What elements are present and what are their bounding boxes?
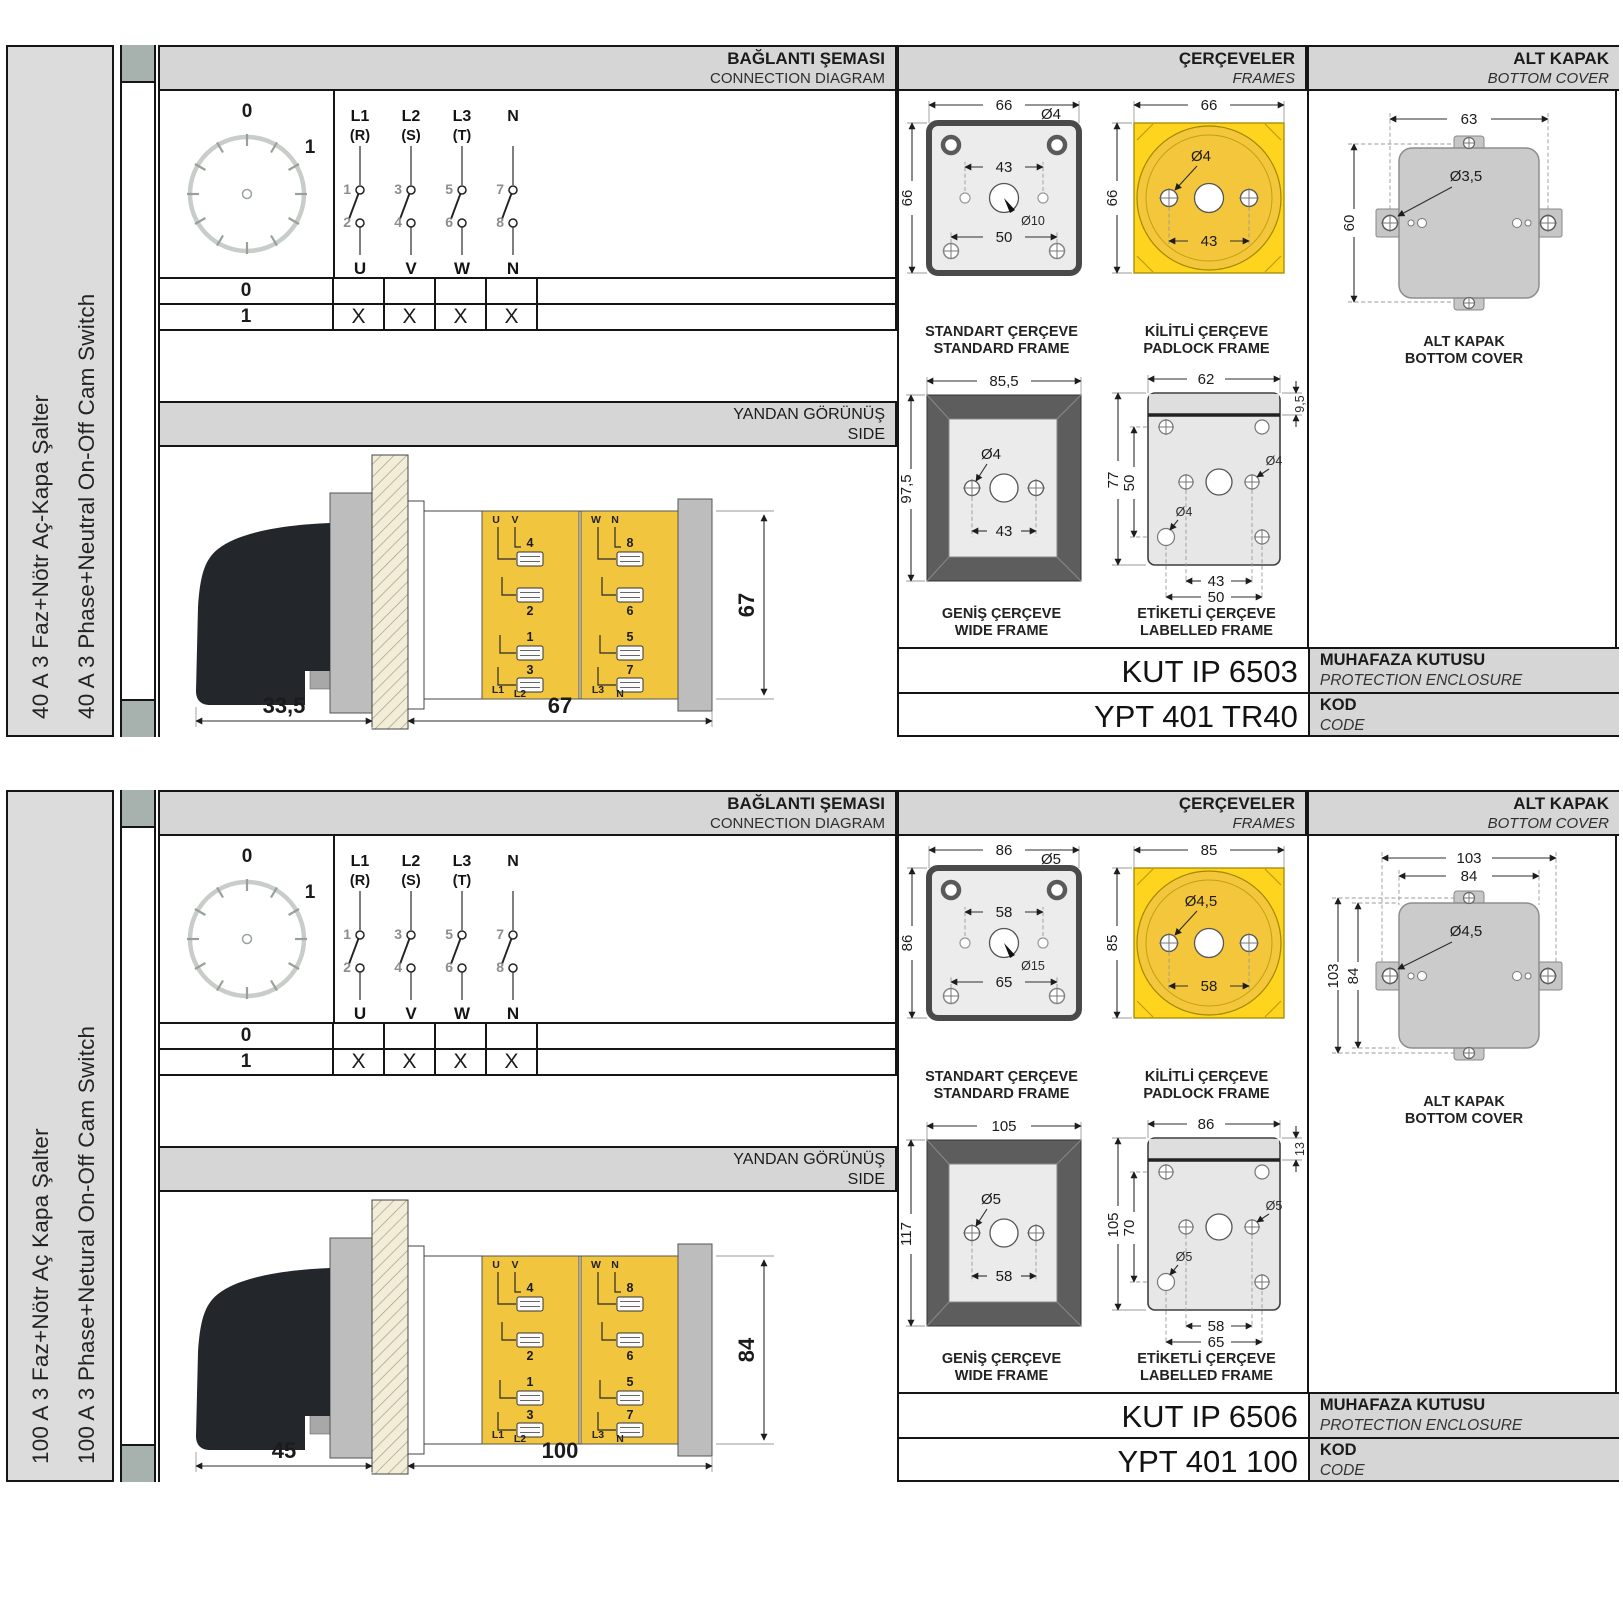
spine-square-bottom xyxy=(122,1444,154,1482)
row1-cell: X xyxy=(487,1050,538,1074)
connection-diagram-drawing: 0 1 L1 (R) 1 2 U L2 (S) xyxy=(160,91,897,279)
svg-text:8: 8 xyxy=(627,536,634,550)
dim-center-dia: Ø10 xyxy=(1021,214,1045,228)
side-header-tr: YANDAN GÖRÜNÜŞ xyxy=(160,405,885,425)
dim-body-height: 67 xyxy=(734,593,759,617)
header-connection-diagram: BAĞLANTI ŞEMASI CONNECTION DIAGRAM xyxy=(160,45,897,91)
svg-text:U: U xyxy=(492,1259,500,1271)
svg-text:N: N xyxy=(507,259,519,278)
header-frames-tr: ÇERÇEVELER xyxy=(899,794,1295,815)
svg-text:V: V xyxy=(511,514,518,526)
figure-labelled-frame: 86 13 105 70 xyxy=(1104,1114,1309,1392)
svg-text:3: 3 xyxy=(394,181,402,197)
svg-text:N: N xyxy=(507,853,519,870)
svg-text:6: 6 xyxy=(445,214,453,230)
binder-spine xyxy=(120,790,156,1482)
svg-text:(T): (T) xyxy=(453,128,472,144)
svg-text:6: 6 xyxy=(627,1349,634,1363)
enclosure-label: MUHAFAZA KUTUSU PROTECTION ENCLOSURE xyxy=(1308,649,1619,692)
header-connection-en: CONNECTION DIAGRAM xyxy=(160,70,885,88)
enclosure-code: KUT IP 6506 xyxy=(899,1394,1308,1437)
bottom-cover-column: 103 84 103 84 xyxy=(1307,836,1619,1392)
svg-text:L2: L2 xyxy=(514,1433,526,1445)
wide-frame-drawing: 105 117 Ø5 xyxy=(899,1114,1104,1350)
dim-cover-hole: Ø3,5 xyxy=(1450,168,1483,185)
labelled-frame-caption: ETİKETLİ ÇERÇEVE LABELLED FRAME xyxy=(1104,1351,1309,1386)
row0-cell xyxy=(487,1024,538,1048)
figure-standard-frame: 66 Ø4 66 xyxy=(899,91,1104,369)
svg-text:(T): (T) xyxy=(453,873,472,889)
row0-cell xyxy=(436,279,487,303)
standard-frame-caption: STANDART ÇERÇEVE STANDARD FRAME xyxy=(899,1069,1104,1104)
svg-text:5: 5 xyxy=(445,926,453,942)
wide-frame-caption: GENİŞ ÇERÇEVE WIDE FRAME xyxy=(899,606,1104,641)
svg-text:7: 7 xyxy=(496,926,504,942)
table-row-0: 0 xyxy=(160,1024,897,1050)
dim-frame-width: 66 xyxy=(996,97,1013,114)
svg-text:(R): (R) xyxy=(350,128,370,144)
svg-text:8: 8 xyxy=(496,214,504,230)
labelled-frame-drawing: 86 13 105 70 xyxy=(1104,1114,1309,1350)
dim-handle-depth: 45 xyxy=(272,1438,296,1463)
dim-frame-height: 77 xyxy=(1105,472,1122,489)
rotary-dial: 0 1 xyxy=(187,101,316,254)
dim-body-height: 84 xyxy=(734,1337,759,1362)
header-cover-en: BOTTOM COVER xyxy=(1309,815,1609,833)
svg-text:4: 4 xyxy=(527,1281,534,1295)
svg-text:5: 5 xyxy=(445,181,453,197)
svg-text:N: N xyxy=(611,1259,619,1271)
pole-l1: L1 (R) 1 2 U xyxy=(343,853,370,1023)
dim-frame-width: 85 xyxy=(1201,842,1218,859)
dim-span: 58 xyxy=(1201,978,1218,995)
side-view-drawing: U V 4 2 1 xyxy=(160,1192,897,1482)
svg-text:L3: L3 xyxy=(592,1429,604,1441)
dim-frame-height: 97,5 xyxy=(899,474,915,503)
header-bottom-cover: ALT KAPAK BOTTOM COVER xyxy=(1307,790,1619,836)
dim-body-width: 67 xyxy=(548,693,572,718)
svg-text:3: 3 xyxy=(527,663,534,677)
svg-text:V: V xyxy=(405,259,417,278)
side-view-box: U V 4 2 1 xyxy=(160,1192,897,1482)
panel-content: BAĞLANTI ŞEMASI CONNECTION DIAGRAM ÇERÇE… xyxy=(158,45,1617,737)
svg-text:2: 2 xyxy=(343,214,351,230)
dim-frame-width: 66 xyxy=(1201,97,1218,114)
dim-frame-width: 86 xyxy=(996,842,1013,859)
dim-frame-width: 86 xyxy=(1198,1116,1215,1133)
figure-padlock-frame: 85 85 xyxy=(1104,836,1309,1114)
side-view-header: YANDAN GÖRÜNÜŞ SIDE xyxy=(160,1146,897,1192)
dim-span2: 50 xyxy=(1208,589,1225,605)
svg-text:7: 7 xyxy=(627,663,634,677)
svg-text:W: W xyxy=(454,259,471,278)
binder-spine xyxy=(120,45,156,737)
svg-text:2: 2 xyxy=(527,604,534,618)
svg-text:N: N xyxy=(616,688,624,700)
dim-span: 58 xyxy=(996,1268,1013,1285)
dim-span2: 65 xyxy=(1208,1334,1225,1350)
product-panel: 100 A 3 Faz+Nötr Aç Kapa Şalter 100 A 3 … xyxy=(6,790,1617,1482)
row1-cell: X xyxy=(385,1050,436,1074)
figure-standard-frame: 86 Ø5 86 xyxy=(899,836,1104,1114)
dim-center-dia: Ø15 xyxy=(1021,959,1045,973)
dim-hole-a: Ø4 xyxy=(1266,454,1283,468)
svg-text:W: W xyxy=(591,1259,601,1271)
dim-handle-depth: 33,5 xyxy=(263,693,306,718)
dim-span-bottom: 50 xyxy=(996,229,1013,246)
product-code: YPT 401 100 xyxy=(899,1439,1308,1480)
dial-position-1: 1 xyxy=(305,137,316,158)
figure-padlock-frame: 66 66 xyxy=(1104,91,1309,369)
code-row: YPT 401 100 KOD CODE xyxy=(897,1437,1619,1482)
padlock-frame-caption: KİLİTLİ ÇERÇEVE PADLOCK FRAME xyxy=(1104,324,1309,359)
dim-span: 43 xyxy=(996,523,1013,540)
pole-l3: L3 (T) 5 6 W xyxy=(445,108,471,278)
row0-filler xyxy=(538,1024,895,1048)
table-row-1: 1 X X X X xyxy=(160,305,897,331)
dim-span1: 43 xyxy=(1208,573,1225,590)
svg-text:1: 1 xyxy=(343,181,351,197)
row1-cell: X xyxy=(334,1050,385,1074)
dim-body-width: 100 xyxy=(542,1438,579,1463)
product-title-english: 40 A 3 Phase+Neutral On-Off Cam Switch xyxy=(74,293,100,719)
bottom-cover-drawing: 63 60 xyxy=(1314,103,1614,333)
dim-hole-a: Ø5 xyxy=(1266,1199,1283,1213)
dim-strip: 9,5 xyxy=(1293,395,1307,412)
svg-text:2: 2 xyxy=(343,959,351,975)
figure-labelled-frame: 62 9,5 77 50 xyxy=(1104,369,1309,647)
dim-cover-height-inner: 84 xyxy=(1345,968,1362,985)
header-connection-diagram: BAĞLANTI ŞEMASI CONNECTION DIAGRAM xyxy=(160,790,897,836)
header-cover-tr: ALT KAPAK xyxy=(1309,794,1609,815)
wide-frame-caption: GENİŞ ÇERÇEVE WIDE FRAME xyxy=(899,1351,1104,1386)
row0-label: 0 xyxy=(160,279,334,303)
svg-text:(S): (S) xyxy=(401,873,421,889)
header-frames-en: FRAMES xyxy=(899,815,1295,833)
product-code: YPT 401 TR40 xyxy=(899,694,1308,735)
dim-strip: 13 xyxy=(1293,1142,1307,1156)
dial-position-0: 0 xyxy=(242,101,253,122)
svg-text:L1: L1 xyxy=(492,684,504,696)
bottom-cover-column: 63 60 xyxy=(1307,91,1619,647)
code-label: KOD CODE xyxy=(1308,694,1619,735)
code-row: YPT 401 TR40 KOD CODE xyxy=(897,692,1619,737)
padlock-frame-drawing: 66 66 xyxy=(1104,91,1309,323)
header-connection-tr: BAĞLANTI ŞEMASI xyxy=(160,794,885,815)
row1-cell: X xyxy=(436,305,487,329)
side-header-tr: YANDAN GÖRÜNÜŞ xyxy=(160,1150,885,1170)
labelled-frame-drawing: 62 9,5 77 50 xyxy=(1104,369,1309,605)
enclosure-label: MUHAFAZA KUTUSU PROTECTION ENCLOSURE xyxy=(1308,1394,1619,1437)
dim-hole-dia: Ø5 xyxy=(981,1191,1001,1208)
svg-text:7: 7 xyxy=(496,181,504,197)
row0-filler xyxy=(538,279,895,303)
row0-cell xyxy=(385,279,436,303)
pole-n: N 7 8 N xyxy=(496,108,519,278)
bottom-cover-caption: ALT KAPAK BOTTOM COVER xyxy=(1309,334,1619,369)
row1-cell: X xyxy=(334,305,385,329)
dial-position-0: 0 xyxy=(242,846,253,867)
side-header-en: SIDE xyxy=(160,425,885,445)
spine-square-top xyxy=(122,790,154,828)
dim-span-bottom: 65 xyxy=(996,974,1013,991)
mounting-plate-hatched xyxy=(372,455,408,729)
row0-cell xyxy=(487,279,538,303)
header-bottom-cover: ALT KAPAK BOTTOM COVER xyxy=(1307,45,1619,91)
svg-text:(S): (S) xyxy=(401,128,421,144)
header-connection-en: CONNECTION DIAGRAM xyxy=(160,815,885,833)
header-frames: ÇERÇEVELER FRAMES xyxy=(897,45,1307,91)
product-sidebar: 40 A 3 Faz+Nötr Aç-Kapa Şalter 40 A 3 Ph… xyxy=(6,45,114,737)
dim-hole-b: Ø5 xyxy=(1176,1250,1193,1264)
connection-diagram-box: 0 1 L1 (R) 1 2 U L2 (S) xyxy=(160,836,897,1024)
svg-text:L1: L1 xyxy=(492,1429,504,1441)
dim-span: 43 xyxy=(1201,233,1218,250)
product-title-turkish: 40 A 3 Faz+Nötr Aç-Kapa Şalter xyxy=(28,395,54,719)
dial-position-1: 1 xyxy=(305,882,316,903)
side-header-en: SIDE xyxy=(160,1170,885,1190)
header-frames-tr: ÇERÇEVELER xyxy=(899,49,1295,70)
frames-column: 86 Ø5 86 xyxy=(897,836,1307,1392)
row0-cell xyxy=(334,279,385,303)
dim-cover-hole: Ø4,5 xyxy=(1450,923,1483,940)
switching-table: 0 1 X X X X xyxy=(160,279,897,331)
svg-text:3: 3 xyxy=(394,926,402,942)
svg-text:5: 5 xyxy=(627,1375,634,1389)
svg-text:2: 2 xyxy=(527,1349,534,1363)
standard-frame-drawing: 86 Ø5 86 xyxy=(899,836,1104,1068)
dim-cover-height-outer: 103 xyxy=(1325,963,1342,988)
dim-cover-width: 63 xyxy=(1461,111,1478,128)
pole-n: N 7 8 N xyxy=(496,853,519,1023)
svg-text:4: 4 xyxy=(394,959,402,975)
standard-frame-drawing: 66 Ø4 66 xyxy=(899,91,1104,323)
svg-text:6: 6 xyxy=(627,604,634,618)
product-title-turkish: 100 A 3 Faz+Nötr Aç Kapa Şalter xyxy=(28,1128,54,1464)
dim-span-vertical: 50 xyxy=(1121,475,1138,492)
dim-cover-width-outer: 103 xyxy=(1456,850,1481,867)
svg-text:6: 6 xyxy=(445,959,453,975)
enclosure-row: KUT IP 6503 MUHAFAZA KUTUSU PROTECTION E… xyxy=(897,647,1619,692)
product-title-english: 100 A 3 Phase+Netural On-Off Cam Switch xyxy=(74,1026,100,1464)
table-row-0: 0 xyxy=(160,279,897,305)
svg-text:7: 7 xyxy=(627,1408,634,1422)
side-view-header: YANDAN GÖRÜNÜŞ SIDE xyxy=(160,401,897,447)
svg-text:N: N xyxy=(611,514,619,526)
dim-frame-height: 117 xyxy=(899,1222,915,1246)
header-frames-en: FRAMES xyxy=(899,70,1295,88)
dim-cover-height: 60 xyxy=(1341,215,1358,232)
pole-l1: L1 (R) 1 2 U xyxy=(343,108,370,278)
svg-text:V: V xyxy=(405,1004,417,1023)
enclosure-code: KUT IP 6503 xyxy=(899,649,1308,692)
pole-l2: L2 (S) 3 4 V xyxy=(394,853,421,1023)
svg-text:L3: L3 xyxy=(453,108,472,125)
product-panel: 40 A 3 Faz+Nötr Aç-Kapa Şalter 40 A 3 Ph… xyxy=(6,45,1617,737)
svg-text:W: W xyxy=(591,514,601,526)
svg-text:3: 3 xyxy=(527,1408,534,1422)
padlock-frame-drawing: 85 85 xyxy=(1104,836,1309,1068)
header-cover-tr: ALT KAPAK xyxy=(1309,49,1609,70)
svg-text:N: N xyxy=(507,1004,519,1023)
svg-text:L3: L3 xyxy=(592,684,604,696)
switching-table: 0 1 X X X X xyxy=(160,1024,897,1076)
row1-filler xyxy=(538,1050,895,1074)
row1-label: 1 xyxy=(160,1050,334,1074)
pole-l3: L3 (T) 5 6 W xyxy=(445,853,471,1023)
svg-text:U: U xyxy=(492,514,500,526)
svg-text:N: N xyxy=(507,108,519,125)
svg-text:U: U xyxy=(354,1004,366,1023)
bottom-cover-drawing: 103 84 103 84 xyxy=(1314,848,1614,1093)
dim-hole-dia: Ø4 xyxy=(981,446,1001,463)
connection-diagram-box: 0 1 L1 (R) 1 2 U L2 (S) xyxy=(160,91,897,279)
svg-text:L3: L3 xyxy=(453,853,472,870)
svg-text:1: 1 xyxy=(527,1375,534,1389)
dim-span-top: 43 xyxy=(996,159,1013,176)
header-frames: ÇERÇEVELER FRAMES xyxy=(897,790,1307,836)
dim-span1: 58 xyxy=(1208,1318,1225,1335)
enclosure-row: KUT IP 6506 MUHAFAZA KUTUSU PROTECTION E… xyxy=(897,1392,1619,1437)
dim-frame-height: 66 xyxy=(899,190,916,207)
dim-frame-height: 86 xyxy=(899,935,916,952)
svg-text:8: 8 xyxy=(627,1281,634,1295)
panel-content: BAĞLANTI ŞEMASI CONNECTION DIAGRAM ÇERÇE… xyxy=(158,790,1617,1482)
dim-span-vertical: 70 xyxy=(1121,1220,1138,1237)
header-connection-tr: BAĞLANTI ŞEMASI xyxy=(160,49,885,70)
dim-hole-dia: Ø4 xyxy=(1191,148,1211,165)
svg-text:1: 1 xyxy=(343,926,351,942)
svg-text:1: 1 xyxy=(527,630,534,644)
svg-text:L2: L2 xyxy=(402,108,421,125)
dim-frame-height: 85 xyxy=(1104,935,1121,952)
row1-cell: X xyxy=(385,305,436,329)
side-view-drawing: U V 4 2 1 xyxy=(160,447,897,737)
bottom-cover-caption: ALT KAPAK BOTTOM COVER xyxy=(1309,1094,1619,1129)
dim-frame-width: 105 xyxy=(991,1118,1016,1135)
dim-hole-dia: Ø4,5 xyxy=(1185,893,1218,910)
svg-text:L1: L1 xyxy=(351,853,370,870)
row0-cell xyxy=(436,1024,487,1048)
header-cover-en: BOTTOM COVER xyxy=(1309,70,1609,88)
row1-cell: X xyxy=(436,1050,487,1074)
dim-frame-height: 105 xyxy=(1105,1212,1122,1237)
standard-frame-caption: STANDART ÇERÇEVE STANDARD FRAME xyxy=(899,324,1104,359)
dim-span-top: 58 xyxy=(996,904,1013,921)
spine-square-bottom xyxy=(122,699,154,737)
row0-cell xyxy=(385,1024,436,1048)
labelled-frame-caption: ETİKETLİ ÇERÇEVE LABELLED FRAME xyxy=(1104,606,1309,641)
svg-text:L2: L2 xyxy=(402,853,421,870)
row0-label: 0 xyxy=(160,1024,334,1048)
product-sidebar: 100 A 3 Faz+Nötr Aç Kapa Şalter 100 A 3 … xyxy=(6,790,114,1482)
svg-text:V: V xyxy=(511,1259,518,1271)
svg-text:5: 5 xyxy=(627,630,634,644)
svg-text:8: 8 xyxy=(496,959,504,975)
dim-hole-b: Ø4 xyxy=(1176,505,1193,519)
row1-label: 1 xyxy=(160,305,334,329)
spine-square-top xyxy=(122,45,154,83)
svg-text:4: 4 xyxy=(394,214,402,230)
svg-text:L1: L1 xyxy=(351,108,370,125)
wide-frame-drawing: 85,5 97,5 Ø4 xyxy=(899,369,1104,605)
rotary-dial: 0 1 xyxy=(187,846,316,999)
table-row-1: 1 X X X X xyxy=(160,1050,897,1076)
code-label: KOD CODE xyxy=(1308,1439,1619,1480)
row1-cell: X xyxy=(487,305,538,329)
svg-text:W: W xyxy=(454,1004,471,1023)
padlock-frame-caption: KİLİTLİ ÇERÇEVE PADLOCK FRAME xyxy=(1104,1069,1309,1104)
connection-diagram-drawing: 0 1 L1 (R) 1 2 U L2 (S) xyxy=(160,836,897,1024)
catalog-page: 40 A 3 Faz+Nötr Aç-Kapa Şalter 40 A 3 Ph… xyxy=(0,0,1623,1623)
svg-text:L2: L2 xyxy=(514,688,526,700)
svg-text:(R): (R) xyxy=(350,873,370,889)
dim-frame-height: 66 xyxy=(1104,190,1121,207)
row0-cell xyxy=(334,1024,385,1048)
side-view-box: U V 4 2 1 xyxy=(160,447,897,737)
frames-column: 66 Ø4 66 xyxy=(897,91,1307,647)
pole-l2: L2 (S) 3 4 V xyxy=(394,108,421,278)
dim-frame-width: 62 xyxy=(1198,371,1215,388)
figure-wide-frame: 105 117 Ø5 xyxy=(899,1114,1104,1392)
dim-frame-width: 85,5 xyxy=(989,373,1018,390)
svg-text:U: U xyxy=(354,259,366,278)
svg-text:N: N xyxy=(616,1433,624,1445)
svg-text:4: 4 xyxy=(527,536,534,550)
dim-cover-width-inner: 84 xyxy=(1461,868,1478,885)
row1-filler xyxy=(538,305,895,329)
mounting-plate-hatched xyxy=(372,1200,408,1474)
figure-wide-frame: 85,5 97,5 Ø4 xyxy=(899,369,1104,647)
